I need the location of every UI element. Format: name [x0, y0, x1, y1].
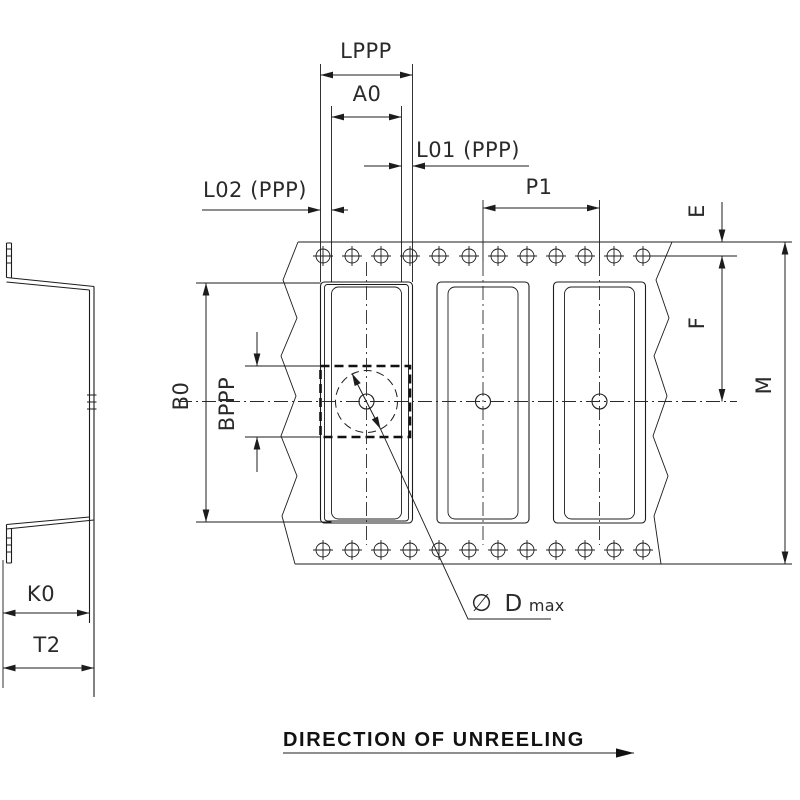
dim-l01-label: L01 (PPP) [416, 138, 520, 162]
top-dimensions: LPPP A0 L01 (PPP) L02 (PPP) P1 [202, 39, 600, 282]
dim-e-label: E [685, 204, 709, 218]
side-view-top-wall [7, 278, 95, 291]
side-view-right-wall [90, 287, 95, 698]
side-view-top-tab [7, 243, 12, 278]
dim-m: M [752, 242, 785, 564]
dim-p1: P1 [483, 175, 600, 262]
dim-bppp-label: BPPP [215, 377, 239, 431]
dim-l02: L02 (PPP) [202, 178, 348, 210]
dim-extension-lines [483, 200, 600, 262]
dmax-leader-line [381, 429, 552, 619]
dim-t2: T2 [3, 633, 94, 668]
side-view-bottom-wall [7, 517, 95, 529]
dim-lppp: LPPP [321, 39, 413, 75]
side-view-pocket-profile: K0 T2 [3, 243, 97, 697]
dim-b0-label: B0 [169, 382, 193, 411]
dim-l01: L01 (PPP) [364, 138, 529, 166]
pocket-1 [321, 262, 413, 545]
side-view-right-wall-hatch [87, 395, 97, 409]
dim-p1-label: P1 [525, 175, 552, 199]
dmax-subscript: max [529, 596, 565, 615]
dim-e: E [685, 202, 722, 242]
tape-break-line-right [653, 242, 672, 564]
dim-b0: B0 [169, 283, 332, 522]
pocket-3 [554, 262, 646, 545]
left-dimensions: B0 BPPP [169, 283, 332, 522]
dim-a0: A0 [332, 82, 402, 117]
dim-m-label: M [752, 376, 776, 395]
dmax-callout: ∅ D max [352, 374, 565, 620]
dmax-letter: D [505, 591, 523, 617]
pocket-2 [437, 262, 529, 545]
dmax-label: ∅ D max [471, 589, 565, 617]
dim-f-label: F [685, 317, 709, 330]
sprocket-hole-row-bottom [313, 540, 653, 560]
tape-top-view [178, 242, 792, 564]
side-view-top-tab-hatch [7, 249, 12, 263]
dim-bppp: BPPP [215, 332, 321, 472]
dim-lppp-label: LPPP [340, 39, 392, 63]
technical-drawing-page: K0 T2 [0, 0, 800, 800]
direction-of-unreeling-label: DIRECTION OF UNREELING [283, 729, 585, 751]
dim-k0-label: K0 [27, 582, 55, 606]
dim-a0-label: A0 [353, 82, 382, 106]
carrier-tape-drawing: K0 T2 [0, 0, 800, 800]
side-view-bottom-tab-hatch [7, 538, 12, 552]
side-view-bottom-tab [7, 525, 12, 564]
dim-l02-label: L02 (PPP) [203, 178, 307, 202]
dim-t2-label: T2 [32, 633, 60, 657]
diameter-symbol: ∅ [471, 589, 492, 617]
footer: DIRECTION OF UNREELING [283, 729, 634, 753]
dim-k0: K0 [3, 560, 90, 688]
tape-break-line-left [281, 242, 298, 564]
dim-f: F [685, 256, 722, 402]
